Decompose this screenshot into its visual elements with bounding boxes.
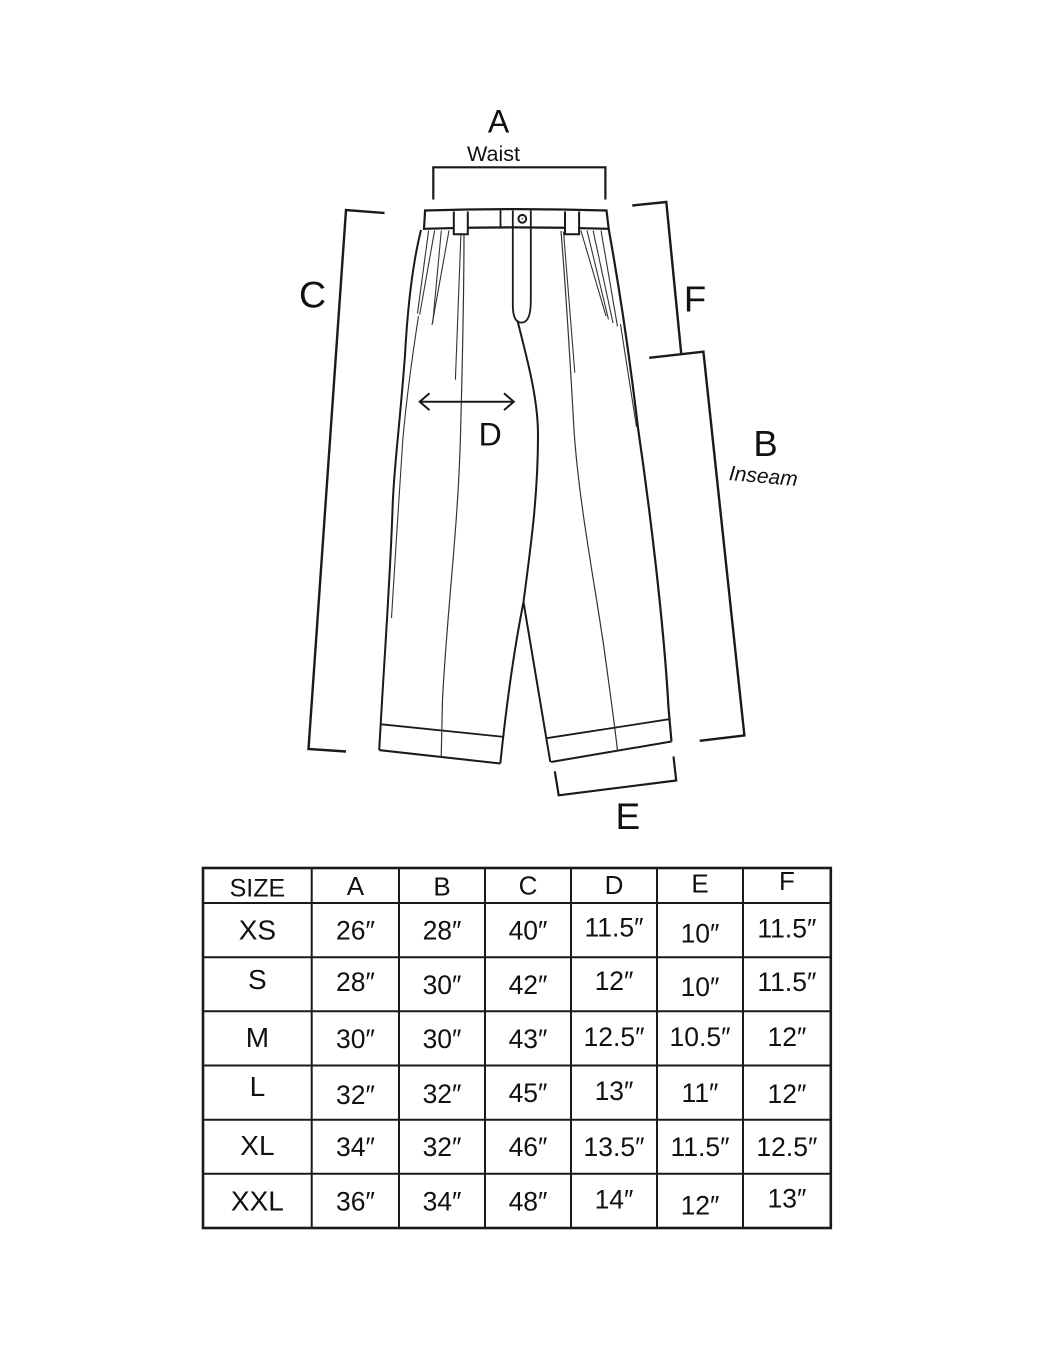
svg-text:L: L [250,1071,266,1102]
svg-text:48″: 48″ [509,1186,548,1216]
svg-text:32″: 32″ [423,1079,462,1109]
svg-text:32″: 32″ [423,1132,462,1162]
svg-text:F: F [779,866,795,896]
svg-text:12″: 12″ [767,1022,806,1052]
svg-text:10″: 10″ [681,972,720,1002]
svg-text:11.5″: 11.5″ [757,967,816,997]
svg-text:14″: 14″ [595,1184,634,1214]
svg-text:Waist: Waist [467,142,520,166]
svg-text:11″: 11″ [682,1078,719,1108]
svg-text:46″: 46″ [509,1132,548,1162]
svg-text:11.5″: 11.5″ [757,914,816,944]
svg-text:D: D [605,870,624,900]
svg-text:F: F [684,279,706,320]
svg-text:12″: 12″ [767,1079,806,1109]
svg-text:26″: 26″ [336,916,375,946]
svg-text:D: D [479,416,502,452]
svg-text:13″: 13″ [767,1183,806,1213]
svg-text:42″: 42″ [509,970,548,1000]
svg-text:13.5″: 13.5″ [584,1132,645,1162]
svg-text:11.5″: 11.5″ [585,913,644,943]
svg-text:M: M [246,1022,269,1053]
svg-text:30″: 30″ [336,1024,375,1054]
svg-text:A: A [347,871,365,901]
svg-text:12″: 12″ [595,966,634,996]
svg-text:12.5″: 12.5″ [584,1022,645,1052]
svg-text:43″: 43″ [509,1024,548,1054]
svg-text:XL: XL [240,1130,274,1161]
svg-text:28″: 28″ [423,916,462,946]
svg-text:11.5″: 11.5″ [671,1132,730,1162]
svg-text:28″: 28″ [336,967,375,997]
svg-text:13″: 13″ [595,1076,634,1106]
svg-text:C: C [519,871,538,901]
svg-text:XS: XS [239,915,276,946]
svg-text:C: C [299,274,326,316]
svg-text:45″: 45″ [509,1078,548,1108]
svg-text:B: B [433,872,450,902]
svg-text:E: E [615,796,640,837]
svg-text:10″: 10″ [681,919,720,949]
svg-text:32″: 32″ [336,1080,375,1110]
svg-text:30″: 30″ [423,970,462,1000]
svg-text:40″: 40″ [509,916,548,946]
svg-text:10.5″: 10.5″ [670,1022,731,1052]
svg-text:30″: 30″ [423,1024,462,1054]
svg-text:XXL: XXL [231,1185,284,1216]
svg-text:SIZE: SIZE [230,875,286,903]
svg-text:S: S [248,964,267,995]
svg-text:A: A [488,104,510,140]
svg-text:12.5″: 12.5″ [756,1132,817,1162]
svg-text:B: B [753,423,777,464]
svg-text:36″: 36″ [336,1186,375,1216]
svg-text:34″: 34″ [423,1186,462,1216]
svg-text:12″: 12″ [681,1190,720,1220]
svg-text:34″: 34″ [336,1132,375,1162]
svg-text:E: E [691,869,708,899]
